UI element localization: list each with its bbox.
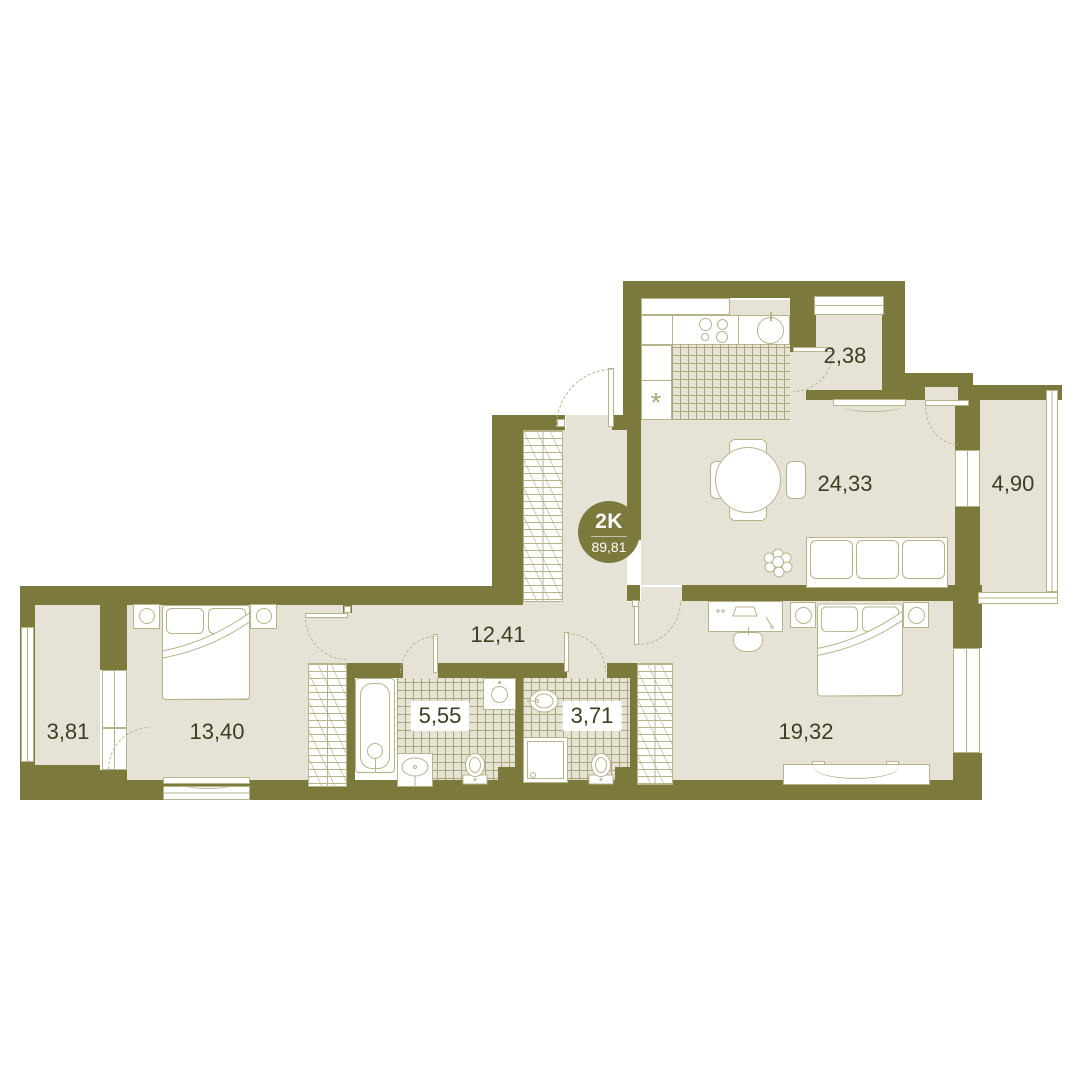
wall-segment: [955, 400, 980, 450]
wardrobe: [523, 430, 563, 602]
stove-burner: [716, 331, 728, 343]
balcony-glazing: [1046, 390, 1058, 592]
door-jamb: [557, 419, 565, 427]
room-label-bedroom-right: 19,32: [778, 721, 833, 743]
wall-segment: [523, 663, 567, 678]
wall-segment: [438, 663, 523, 678]
apartment-badge: 2K 89,81: [578, 501, 640, 563]
plant: [762, 546, 795, 579]
bedroom-right-floor: [637, 601, 953, 788]
window: [102, 670, 127, 728]
door-jamb: [632, 600, 639, 607]
wall-segment: [20, 586, 492, 605]
wall-segment: [347, 663, 355, 787]
room-label-hallway: 12,41: [470, 624, 525, 646]
badge-divider: [591, 536, 627, 537]
nightstand: [790, 602, 816, 628]
radiator: [182, 780, 234, 789]
dining-chair: [786, 461, 806, 499]
wall-segment: [35, 765, 100, 780]
fridge-divider: [641, 380, 672, 381]
bathtub: [355, 678, 395, 773]
counter-divider: [672, 315, 673, 345]
balcony-glazing: [21, 627, 34, 762]
wall-segment: [623, 281, 641, 430]
kitchen-tile: [672, 345, 790, 420]
window: [955, 450, 980, 507]
dining-table: [715, 447, 781, 513]
room-label-bathroom-small: 3,71: [563, 701, 622, 731]
wall-segment: [953, 601, 982, 648]
wall-segment: [612, 415, 641, 430]
window: [814, 296, 884, 315]
washing-machine: [483, 678, 516, 710]
wall-segment: [627, 585, 640, 601]
room-label-balcony-right: 4,90: [992, 473, 1035, 495]
double-bed: [817, 603, 903, 697]
wardrobe: [308, 663, 347, 787]
door-opening: [925, 387, 958, 400]
stove-burner: [701, 333, 709, 341]
nightstand: [903, 602, 929, 628]
nightstand: [250, 604, 277, 629]
shower-tray: [523, 737, 568, 783]
wall-segment: [492, 415, 523, 605]
door-opening: [641, 587, 682, 601]
stove-burner: [717, 319, 728, 330]
toilet: [462, 752, 488, 786]
kitchen-sink: [757, 317, 784, 344]
room-label-balcony-top: 2,38: [824, 345, 867, 367]
room-label-kitchen-living: 24,33: [817, 473, 872, 495]
wall-segment: [355, 663, 403, 678]
sofa: [806, 537, 948, 588]
desk-chair: [733, 632, 763, 652]
desk-items: [710, 603, 782, 631]
sink: [526, 686, 560, 716]
room-label-bathroom-large: 5,55: [411, 701, 470, 731]
wardrobe: [637, 663, 673, 785]
balcony-glazing: [978, 592, 1058, 604]
toilet: [588, 752, 614, 786]
room-label-balcony-left: 3,81: [47, 721, 90, 743]
wall-segment: [498, 767, 523, 787]
door-jamb: [344, 606, 351, 613]
double-bed: [162, 605, 250, 700]
wall-segment: [953, 753, 982, 788]
badge-total-area: 89,81: [591, 539, 626, 555]
wall-segment: [100, 605, 127, 670]
nightstand: [133, 604, 160, 629]
badge-type: 2K: [595, 510, 623, 534]
sink: [397, 753, 433, 787]
window: [953, 648, 980, 753]
wall-segment: [790, 298, 816, 352]
room-label-bedroom-left: 13,40: [189, 721, 244, 743]
kitchen-upper-cabinet: [641, 298, 730, 315]
kitchen-faucet: [770, 312, 772, 321]
stove-burner: [699, 318, 712, 331]
wall-segment: [100, 770, 127, 780]
dresser: [783, 764, 930, 785]
floor-plan: *: [0, 0, 1080, 1081]
counter-divider: [738, 315, 739, 345]
radiator: [843, 402, 901, 412]
wall-segment: [492, 415, 565, 430]
wall-segment: [615, 767, 637, 787]
